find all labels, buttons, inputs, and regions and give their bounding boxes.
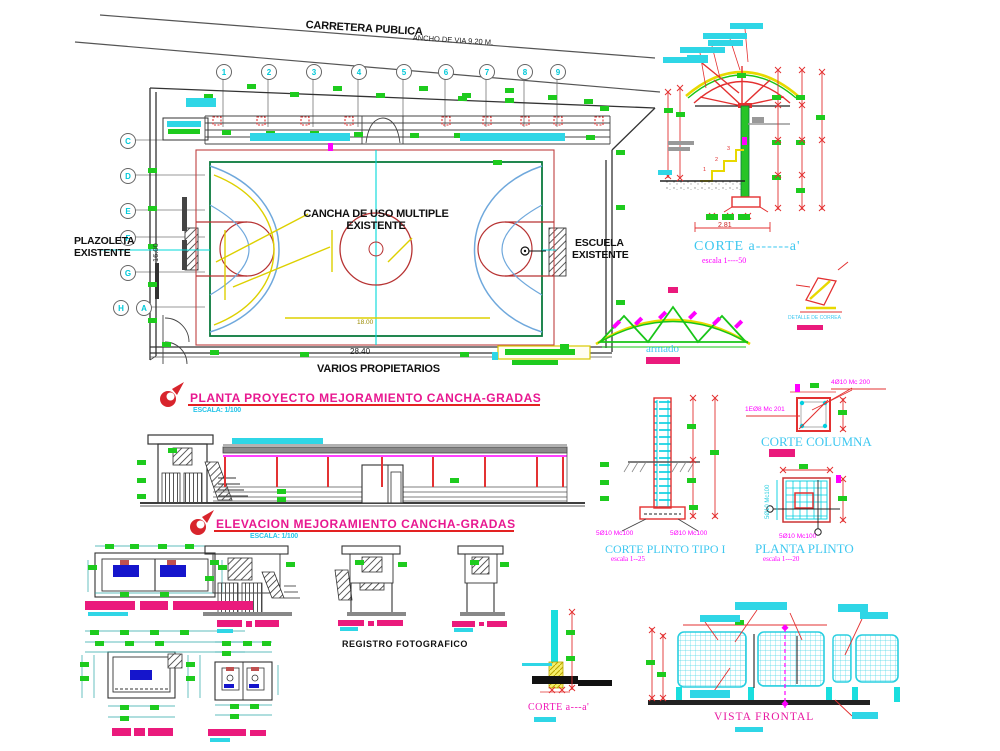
grid-bubble-label: H — [118, 304, 124, 313]
grid-bubble-label: 8 — [523, 68, 527, 77]
grid-bubble-row-a: A — [136, 300, 152, 316]
elevation-title-underline — [214, 530, 514, 532]
cad-linework — [0, 0, 1000, 751]
step-number-1: 1 — [703, 168, 706, 174]
escuela-label-line2: EXISTENTE — [572, 250, 629, 261]
column-section-title: CORTE COLUMNA — [761, 435, 872, 448]
section-a-dim: 2.81 — [718, 222, 732, 229]
plinto-plan-rebar-left-label: 5Ø10 Mc100 — [765, 485, 771, 519]
plinto-section-drawing — [622, 398, 715, 531]
plazoleta-label-line1: PLAZOLETA — [74, 236, 134, 247]
grid-bubble-label: G — [125, 269, 131, 278]
plinto-section-scale: escala 1--25 — [611, 556, 645, 563]
grid-bubble-3: 3 — [306, 64, 322, 80]
grid-bubble-label: 7 — [485, 68, 489, 77]
grid-bubble-label: E — [125, 207, 130, 216]
grid-bubble-7: 7 — [479, 64, 495, 80]
plan-inner-dim: 18.00 — [357, 320, 373, 327]
plan-height-dim: 16.00 — [152, 243, 160, 262]
plan-width-dim: 28.40 — [350, 348, 370, 356]
grid-bubble-5: 5 — [396, 64, 412, 80]
plinto-rebar-left-label: 5Ø10 Mc100 — [596, 531, 633, 538]
grid-bubble-label: C — [125, 137, 131, 146]
grid-bubble-8: 8 — [517, 64, 533, 80]
court-label-line2: EXISTENTE — [280, 221, 472, 232]
grid-bubble-row-g: G — [120, 265, 136, 281]
plan-title-marker-icon — [160, 382, 184, 407]
elevation-title-scale: ESCALA: 1/100 — [250, 533, 298, 540]
correa-detail-label: DETALLE DE CORREA — [788, 316, 841, 321]
grid-bubble-label: 9 — [556, 68, 560, 77]
section-a-scale: escala 1----50 — [702, 257, 746, 265]
elevation-title: ELEVACION MEJORAMIENTO CANCHA-GRADAS — [216, 518, 516, 530]
escuela-label-line1: ESCUELA — [575, 238, 624, 249]
grid-bubble-label: 1 — [222, 68, 226, 77]
corte-bottom-title: CORTE a---a' — [528, 703, 589, 713]
plinto-plan-title: PLANTA PLINTO — [755, 542, 854, 555]
step-number-3: 3 — [727, 147, 730, 153]
grid-bubble-label: 5 — [402, 68, 406, 77]
plinto-section-title: CORTE PLINTO TIPO I — [605, 543, 726, 555]
vista-frontal-drawing — [648, 610, 900, 716]
truss-armado-label: armado — [646, 344, 679, 355]
grid-bubble-6: 6 — [438, 64, 454, 80]
grid-bubble-1: 1 — [216, 64, 232, 80]
grid-bubble-label: 4 — [357, 68, 361, 77]
elevation-title-marker-icon — [190, 510, 214, 535]
grid-bubble-4: 4 — [351, 64, 367, 80]
plinto-plan-rebar-bottom-label: 5Ø10 Mc100 — [779, 534, 816, 541]
plazoleta-label-line2: EXISTENTE — [74, 248, 131, 259]
step-number-2: 2 — [715, 158, 718, 164]
grid-bubble-label: D — [125, 172, 131, 181]
plinto-plan-drawing — [767, 470, 843, 535]
vista-frontal-title: VISTA FRONTAL — [714, 712, 814, 724]
grid-bubble-9: 9 — [550, 64, 566, 80]
corte-bottom-drawing — [532, 610, 612, 692]
column-rebar-side-label: 1EØ8 Mc 201 — [745, 407, 785, 414]
plinto-plan-scale: escala 1---20 — [763, 556, 799, 563]
grid-bubble-row-e: E — [120, 203, 136, 219]
grid-bubble-label: A — [141, 304, 147, 313]
varios-propietarios-label: VARIOS PROPIETARIOS — [317, 364, 440, 375]
grid-bubble-2: 2 — [261, 64, 277, 80]
elevation-drawing — [140, 435, 585, 506]
plinto-rebar-right-label: 5Ø10 Mc100 — [670, 531, 707, 538]
grid-bubble-row-h: H — [113, 300, 129, 316]
grid-bubble-label: 2 — [267, 68, 271, 77]
grid-bubble-row-d: D — [120, 168, 136, 184]
grid-stems — [134, 78, 557, 307]
court-label-line1: CANCHA DE USO MULTIPLE — [280, 209, 472, 220]
plan-title-scale: ESCALA: 1/100 — [193, 407, 241, 414]
grid-bubble-label: 6 — [444, 68, 448, 77]
correa-detail-drawing — [796, 262, 848, 312]
section-a-title: CORTE a------a' — [694, 240, 800, 254]
column-rebar-top-label: 4Ø10 Mc 200 — [831, 380, 870, 387]
cad-sheet: 1 2 3 4 5 6 7 8 9 C D E F G H A CARRETER… — [0, 0, 1000, 751]
registro-fotografico-label: REGISTRO FOTOGRAFICO — [342, 640, 468, 649]
grid-bubble-label: 3 — [312, 68, 316, 77]
plan-title-underline — [188, 404, 540, 406]
grid-bubble-row-c: C — [120, 133, 136, 149]
plan-title: PLANTA PROYECTO MEJORAMIENTO CANCHA-GRAD… — [190, 392, 541, 404]
truss-armado-drawing — [596, 307, 750, 347]
